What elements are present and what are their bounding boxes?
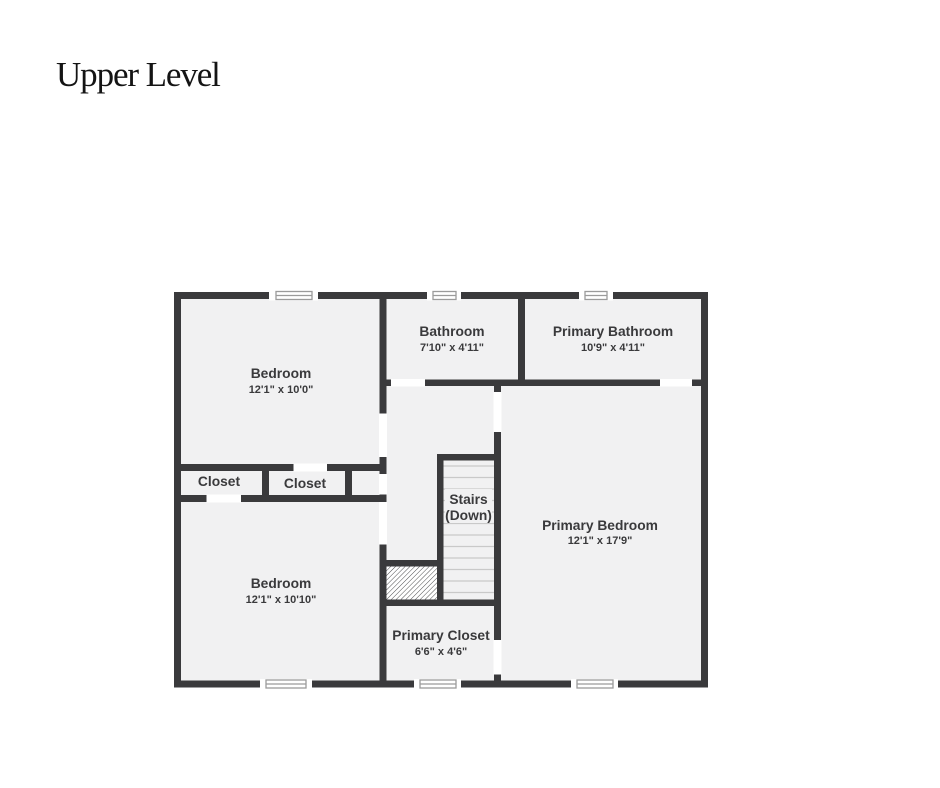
svg-text:(Down): (Down) bbox=[445, 508, 492, 523]
svg-text:Closet: Closet bbox=[198, 474, 241, 489]
svg-text:Closet: Closet bbox=[284, 476, 327, 491]
svg-text:6'6" x 4'6": 6'6" x 4'6" bbox=[415, 646, 467, 658]
svg-text:Primary Closet: Primary Closet bbox=[392, 628, 490, 643]
svg-text:10'9" x 4'11": 10'9" x 4'11" bbox=[581, 342, 645, 354]
svg-text:Bedroom: Bedroom bbox=[251, 576, 312, 591]
svg-text:12'1" x 10'0": 12'1" x 10'0" bbox=[249, 384, 314, 396]
svg-text:Bedroom: Bedroom bbox=[251, 366, 312, 381]
svg-text:12'1" x 17'9": 12'1" x 17'9" bbox=[568, 535, 633, 547]
svg-text:Stairs: Stairs bbox=[449, 492, 488, 507]
svg-text:7'10" x 4'11": 7'10" x 4'11" bbox=[420, 342, 484, 354]
svg-text:Primary Bedroom: Primary Bedroom bbox=[542, 518, 658, 533]
svg-text:12'1" x 10'10": 12'1" x 10'10" bbox=[246, 594, 317, 606]
svg-text:Primary Bathroom: Primary Bathroom bbox=[553, 324, 673, 339]
svg-text:Bathroom: Bathroom bbox=[419, 324, 484, 339]
